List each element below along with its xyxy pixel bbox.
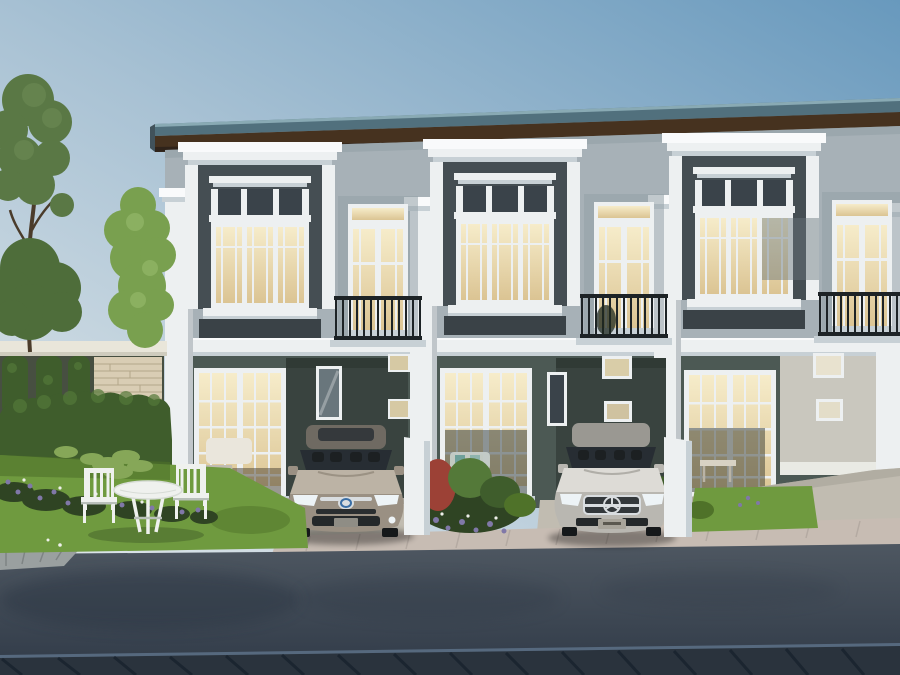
car-hood — [556, 468, 666, 492]
interior-sofa — [206, 438, 252, 464]
wall-shade — [424, 441, 430, 535]
car-mirror-left — [288, 466, 298, 475]
car-wheel-left — [562, 527, 577, 536]
balcony-unit-3 — [814, 192, 900, 343]
floor-band-highlight — [165, 338, 900, 340]
patio-shadow — [88, 527, 204, 543]
car-plate-text-smudge — [603, 522, 621, 525]
pavilion-beam-shadow — [0, 352, 167, 356]
slot-window-unit-1 — [316, 366, 342, 420]
lawn-shade — [210, 506, 290, 534]
bay-window-unit-1 — [178, 142, 342, 338]
ivy-texture — [43, 375, 53, 385]
bay-unit-3-cool-reflection — [762, 218, 819, 280]
ivy-texture — [74, 362, 82, 370]
tree-shadow-on-road — [0, 570, 300, 630]
car-roof — [572, 423, 650, 447]
slot-glass — [550, 375, 564, 423]
interior-dining-table — [700, 460, 736, 466]
scene-canvas: Two-storey townhome row — exterior rende… — [0, 0, 900, 675]
road — [0, 544, 900, 658]
car-license-plate — [334, 518, 358, 527]
slot-window-unit-2 — [547, 372, 567, 426]
roof-end-cap — [150, 124, 155, 152]
car-grille-slot — [316, 509, 376, 514]
car-fog-right — [389, 517, 396, 524]
balcony-unit-2 — [576, 194, 672, 345]
french-door-unit-3 — [681, 370, 779, 504]
frosted-glass — [605, 359, 629, 376]
frosted-glass — [390, 401, 408, 417]
balcony-unit-1 — [330, 196, 426, 347]
wall-shade — [686, 441, 692, 537]
car-hood — [290, 470, 402, 494]
ivy-texture — [7, 363, 17, 373]
car-mirror-right — [394, 466, 404, 475]
car-wheel-right — [646, 527, 661, 536]
frosted-glass — [390, 356, 408, 370]
frosted-glass — [607, 404, 629, 419]
bed-grass-clump — [504, 493, 536, 517]
floor-band — [165, 338, 900, 356]
soft-shadow-on-road — [300, 576, 560, 620]
divider-wall-1 — [404, 437, 430, 535]
townhouse-render: Two-storey townhome row — exterior rende… — [0, 0, 900, 675]
frosted-glass — [816, 356, 841, 375]
soft-shadow-on-road-2 — [600, 572, 840, 608]
balcony-plant-silhouette — [596, 305, 616, 335]
floor-band-shadow — [165, 352, 900, 356]
frosted-glass — [819, 402, 840, 418]
car-sunroof — [318, 428, 374, 441]
bay-window-unit-2 — [423, 139, 587, 335]
divider-wall-2 — [664, 437, 692, 537]
car-wheel-right — [382, 528, 398, 537]
